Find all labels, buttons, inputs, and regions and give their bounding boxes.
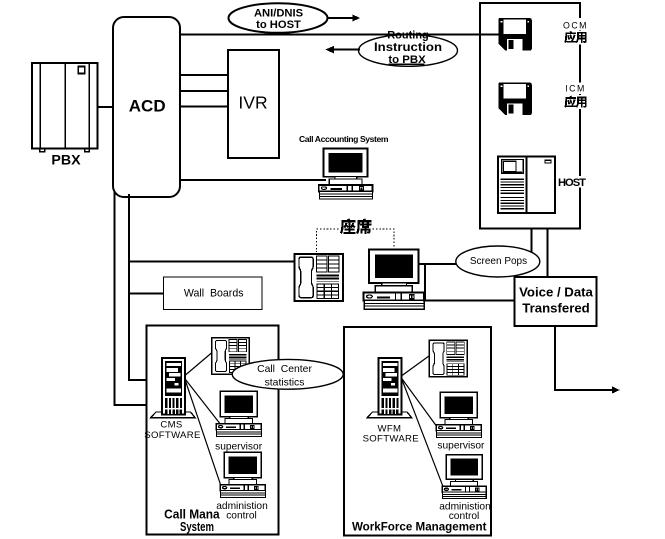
svg-text:OCM: OCM — [563, 20, 588, 30]
svg-text:Voice / Data: Voice / Data — [519, 285, 593, 300]
svg-text:ACD: ACD — [129, 97, 166, 116]
svg-text:Instruction: Instruction — [374, 40, 442, 54]
svg-text:SOFTWARE: SOFTWARE — [363, 434, 419, 445]
svg-text:System: System — [180, 520, 214, 534]
svg-text:WorkForce Management: WorkForce Management — [352, 520, 487, 534]
svg-text:Wall Boards: Wall Boards — [184, 288, 244, 300]
svg-text:IVR: IVR — [238, 93, 267, 113]
svg-text:Call Center: Call Center — [257, 364, 312, 375]
svg-text:HOST: HOST — [558, 177, 586, 189]
svg-text:ICM: ICM — [565, 83, 586, 93]
svg-text:ANI/DNIS: ANI/DNIS — [254, 7, 304, 19]
svg-text:control: control — [226, 511, 257, 522]
svg-text:Call Accounting System: Call Accounting System — [299, 134, 389, 144]
svg-text:supervisor: supervisor — [215, 442, 263, 453]
svg-text:Screen Pops: Screen Pops — [470, 256, 527, 267]
svg-text:Call Mana: Call Mana — [164, 507, 220, 521]
svg-text:statistics: statistics — [265, 377, 305, 388]
svg-text:Transfered: Transfered — [522, 301, 589, 316]
svg-text:PBX: PBX — [51, 153, 81, 169]
svg-text:SOFTWARE: SOFTWARE — [144, 430, 200, 441]
svg-text:supervisor: supervisor — [437, 441, 485, 452]
svg-text:to HOST: to HOST — [256, 19, 301, 31]
